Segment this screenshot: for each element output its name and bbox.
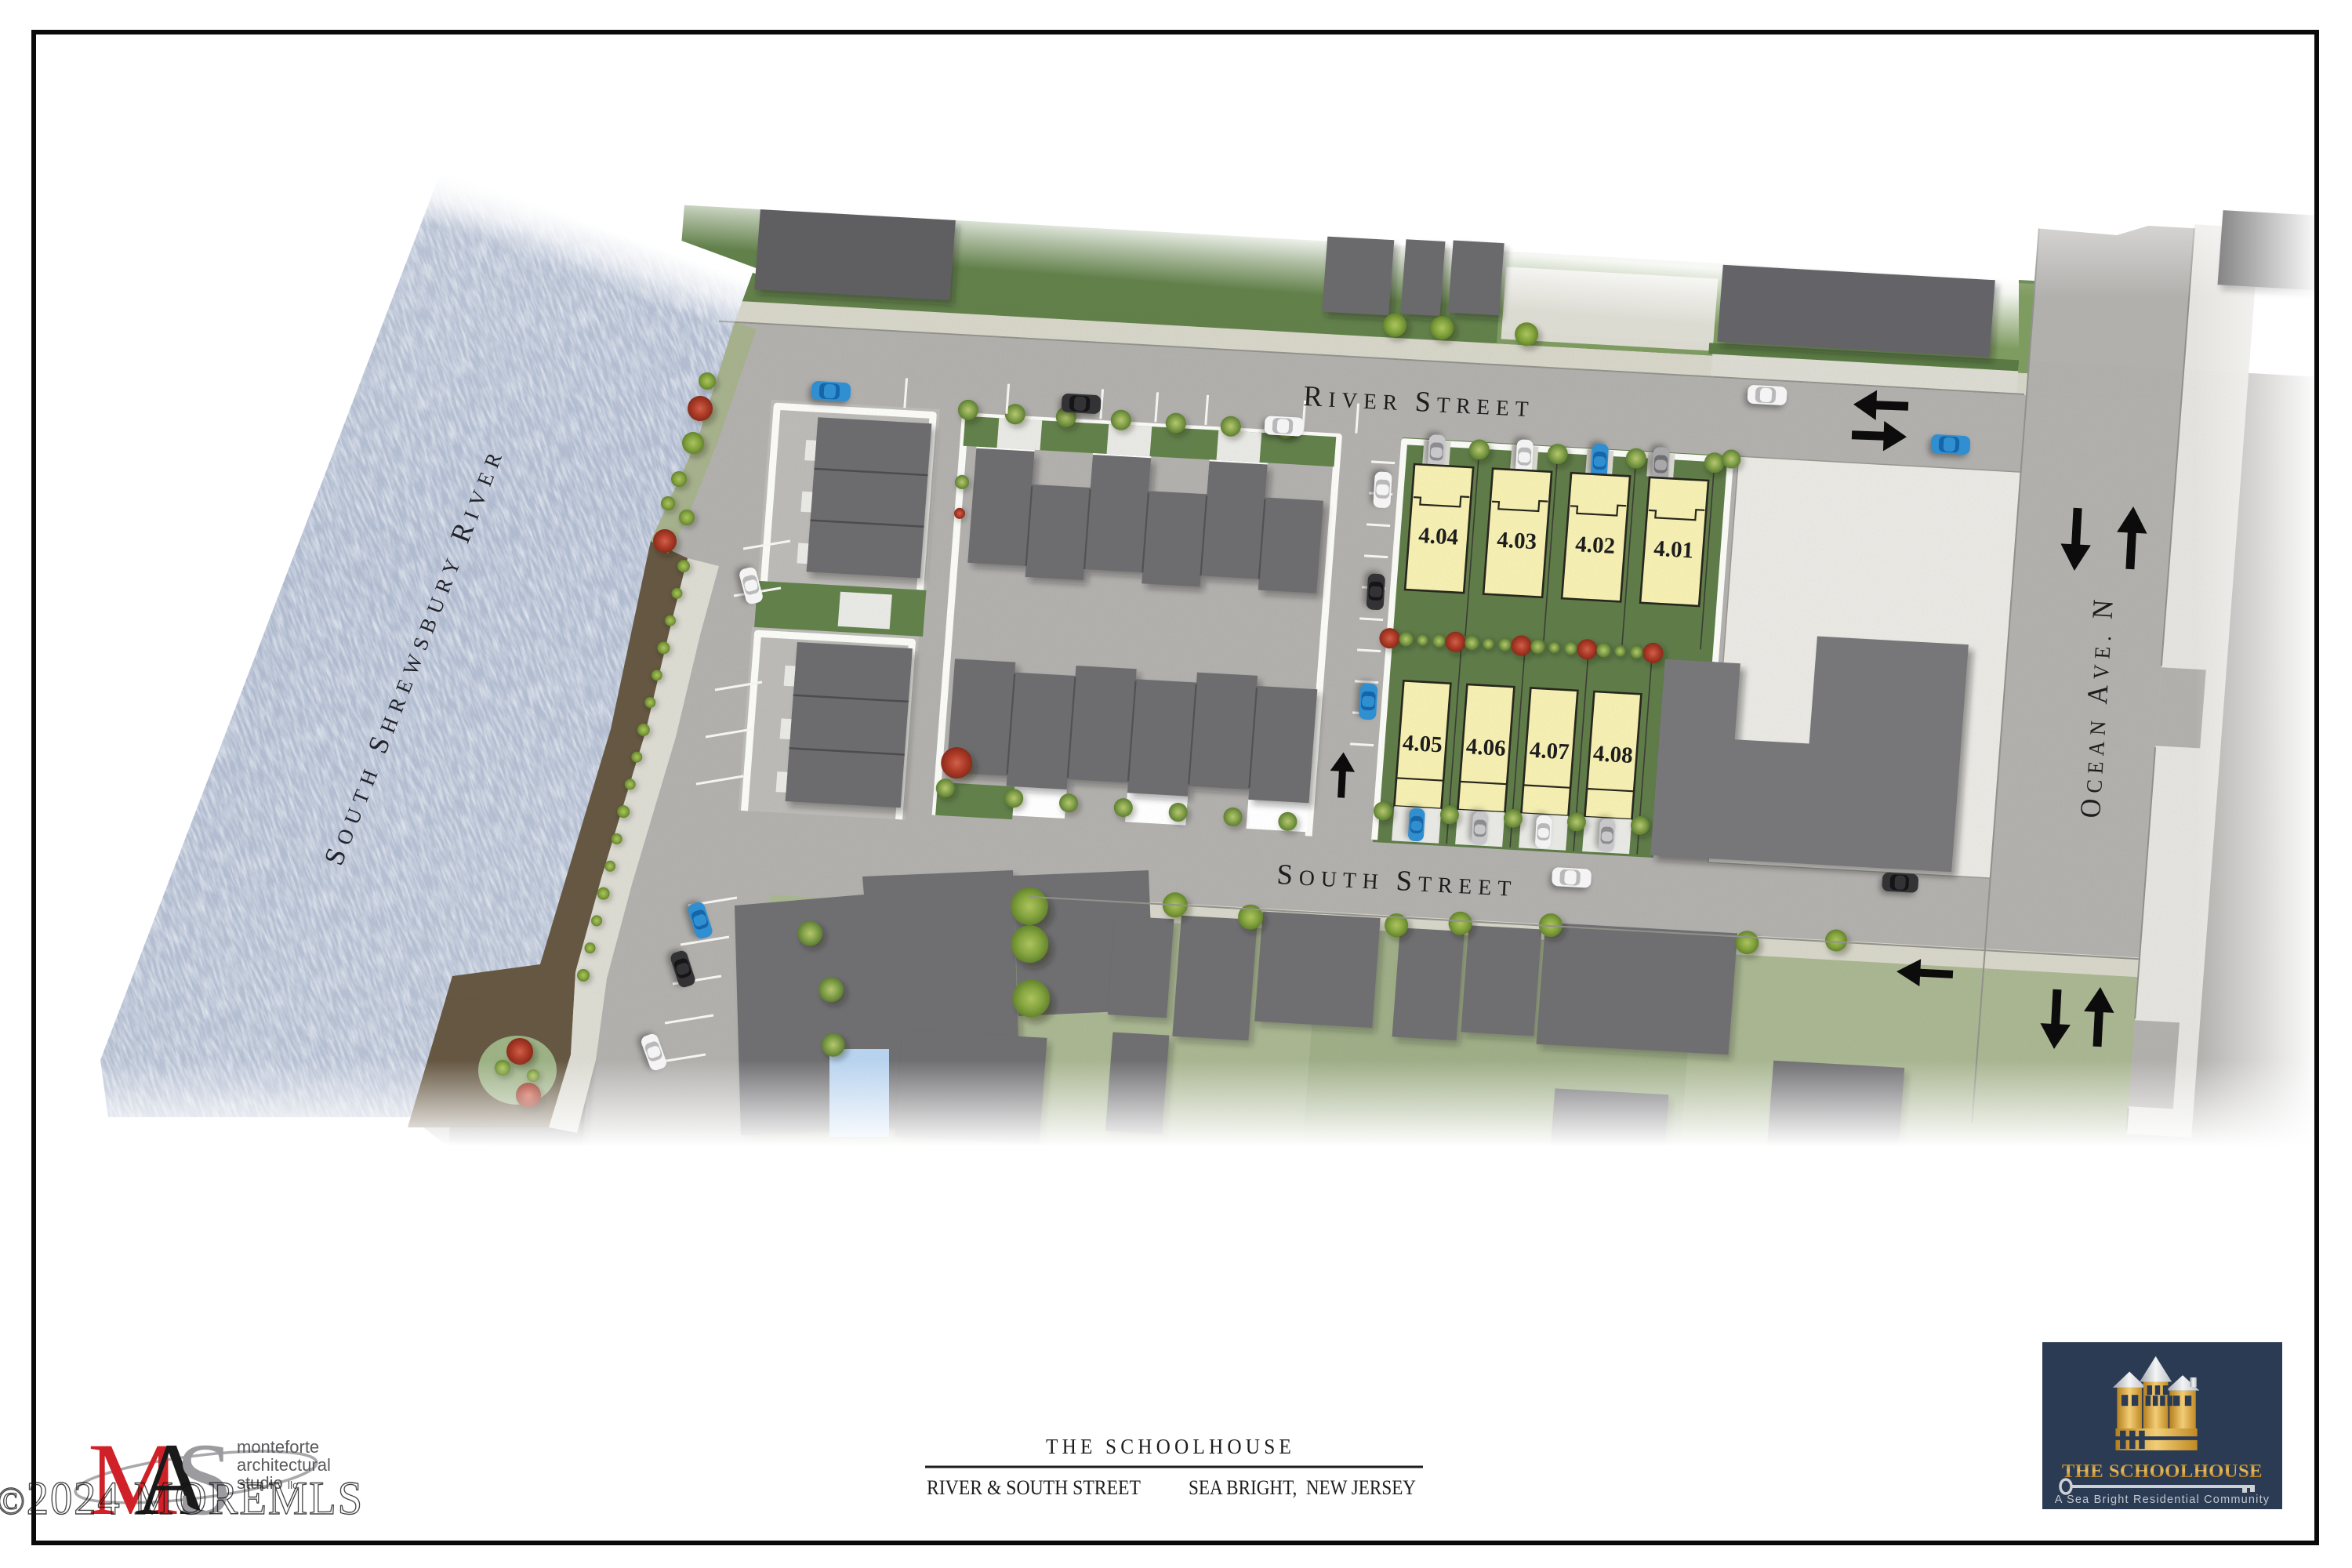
svg-text:SEA BRIGHT, NEW JERSEY: SEA BRIGHT, NEW JERSEY — [1189, 1476, 1416, 1499]
svg-text:RIVER & SOUTH STREET: RIVER & SOUTH STREET — [927, 1476, 1141, 1499]
svg-text:©2024 MOREMLS: ©2024 MOREMLS — [0, 1472, 364, 1524]
svg-text:A Sea Bright Residential Commu: A Sea Bright Residential Community — [2055, 1494, 2270, 1506]
svg-text:THE SCHOOLHOUSE: THE SCHOOLHOUSE — [2062, 1461, 2263, 1482]
svg-text:monteforte: monteforte — [237, 1437, 319, 1457]
svg-text:THE SCHOOLHOUSE: THE SCHOOLHOUSE — [1046, 1435, 1295, 1458]
